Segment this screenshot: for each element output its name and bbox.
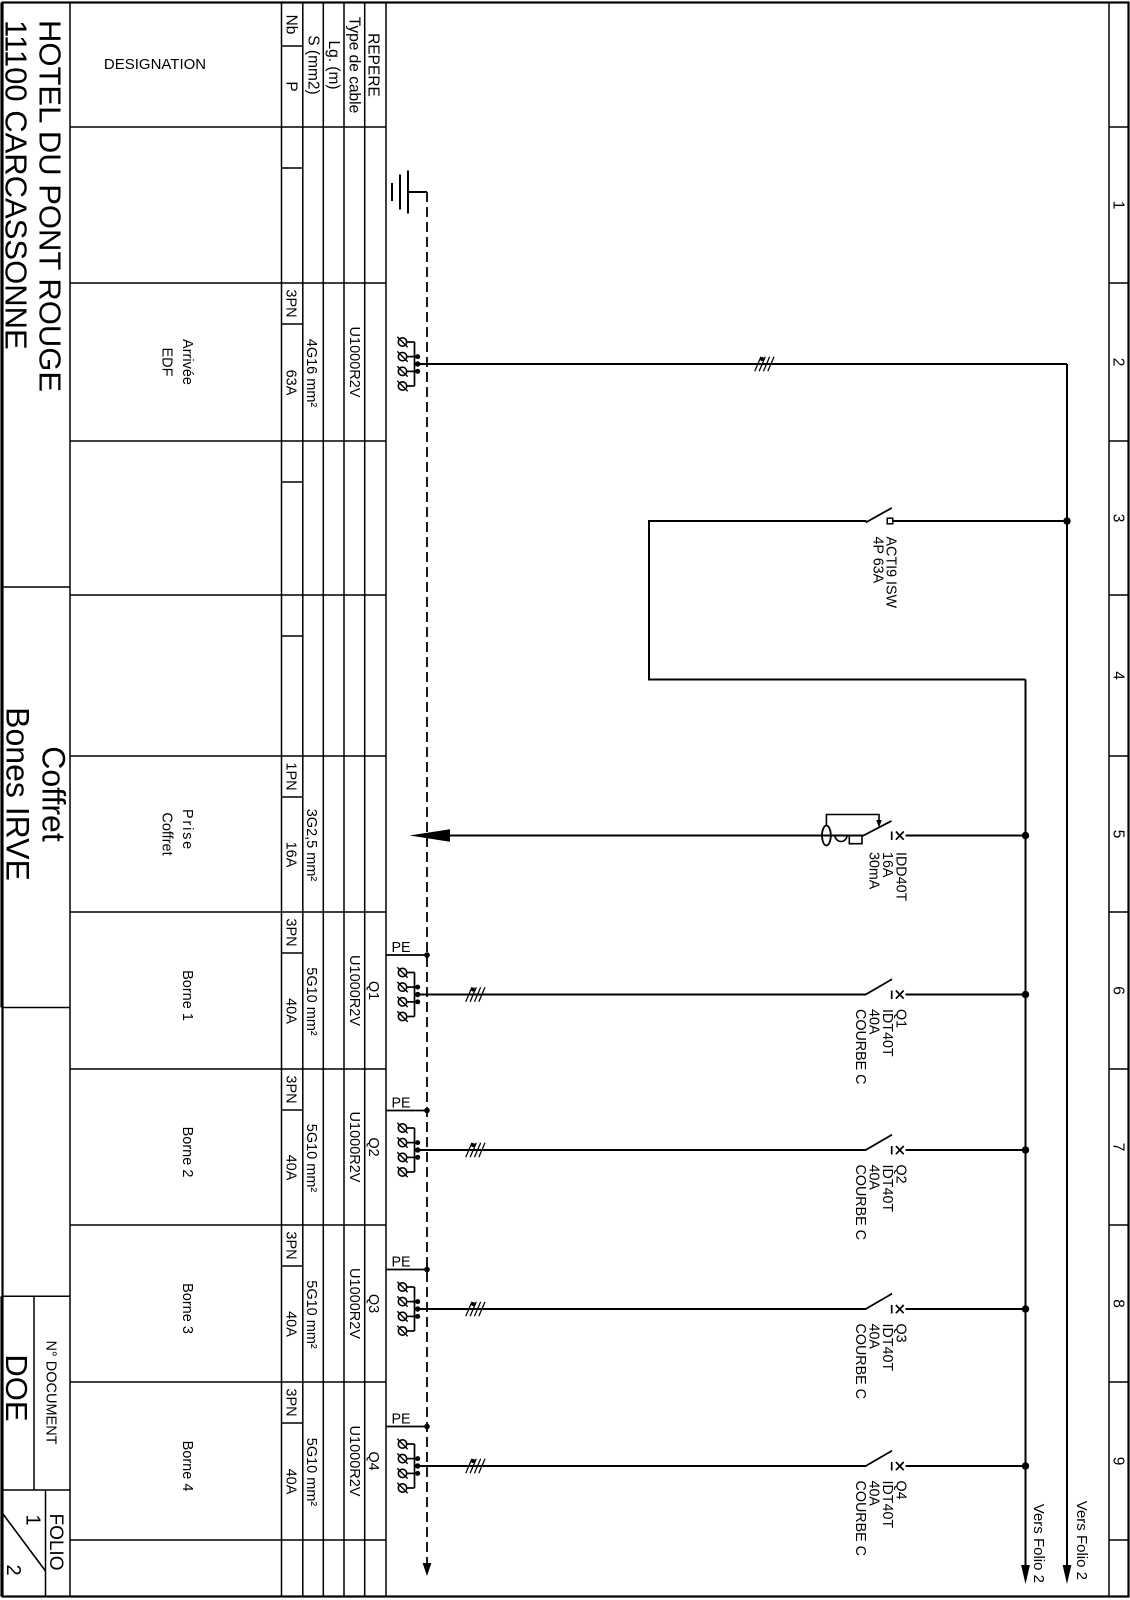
svg-text:6: 6 [1110, 986, 1127, 995]
svg-text:COURBE C: COURBE C [852, 1165, 868, 1240]
svg-text:1PN: 1PN [283, 762, 299, 790]
svg-text:3PN: 3PN [283, 1388, 299, 1416]
svg-text:3PN: 3PN [283, 1231, 299, 1259]
svg-text:5: 5 [1110, 830, 1127, 839]
svg-text:Borne 1: Borne 1 [179, 970, 195, 1021]
svg-text:PE: PE [392, 940, 411, 956]
svg-text:5G10 mm²: 5G10 mm² [303, 1438, 319, 1507]
svg-text:9: 9 [1110, 1457, 1127, 1466]
svg-text:S (mm2): S (mm2) [305, 35, 322, 94]
svg-text:N° DOCUMENT: N° DOCUMENT [43, 1340, 59, 1444]
svg-text:Type de cable: Type de cable [346, 17, 363, 114]
svg-text:11100 CARCASSONNE: 11100 CARCASSONNE [0, 20, 34, 350]
svg-text:63A: 63A [283, 370, 299, 396]
svg-text:COURBE C: COURBE C [852, 1009, 868, 1084]
svg-text:5G10 mm²: 5G10 mm² [303, 1280, 319, 1349]
svg-text:U1000R2V: U1000R2V [346, 327, 362, 398]
svg-text:Borne 3: Borne 3 [179, 1283, 195, 1334]
svg-text:2: 2 [2, 1564, 24, 1575]
svg-text:REPERE: REPERE [365, 33, 382, 97]
svg-text:2: 2 [1110, 358, 1127, 367]
svg-text:40A: 40A [283, 1311, 299, 1337]
svg-text:DOE: DOE [0, 1354, 34, 1421]
svg-text:EDF: EDF [159, 348, 175, 377]
svg-text:3PN: 3PN [283, 918, 299, 946]
svg-text:4: 4 [1110, 671, 1127, 680]
svg-text:4G16 mm²: 4G16 mm² [303, 339, 319, 408]
svg-text:16A: 16A [283, 842, 299, 868]
svg-text:Vers Folio 2: Vers Folio 2 [1073, 1501, 1090, 1580]
svg-text:COURBE C: COURBE C [852, 1481, 868, 1556]
svg-text:Nb: Nb [283, 15, 300, 35]
svg-text:Arrivée: Arrivée [179, 339, 195, 385]
svg-text:Q4: Q4 [365, 1451, 381, 1470]
svg-text:Prise: Prise [179, 809, 195, 851]
svg-text:U1000R2V: U1000R2V [346, 955, 362, 1026]
svg-text:5G10 mm²: 5G10 mm² [303, 1124, 319, 1193]
svg-text:Lg. (m): Lg. (m) [325, 40, 342, 89]
svg-text:Borne 2: Borne 2 [179, 1127, 195, 1178]
svg-text:P: P [283, 81, 300, 91]
svg-text:Coffret: Coffret [36, 746, 72, 842]
svg-text:FOLIO: FOLIO [45, 1513, 66, 1570]
svg-text:30mA: 30mA [866, 852, 882, 890]
svg-text:COURBE C: COURBE C [852, 1324, 868, 1399]
svg-text:Borne 4: Borne 4 [179, 1441, 195, 1492]
svg-text:U1000R2V: U1000R2V [346, 1426, 362, 1497]
svg-text:3G2,5 mm²: 3G2,5 mm² [303, 809, 319, 882]
svg-text:40A: 40A [283, 998, 299, 1024]
svg-text:3: 3 [1110, 514, 1127, 523]
svg-text:PE: PE [392, 1255, 411, 1271]
svg-text:40A: 40A [283, 1469, 299, 1495]
svg-text:DESIGNATION: DESIGNATION [104, 56, 206, 73]
svg-text:8: 8 [1110, 1299, 1127, 1308]
svg-text:40A: 40A [283, 1155, 299, 1181]
svg-text:4P 63A: 4P 63A [870, 537, 886, 584]
svg-text:Q3: Q3 [365, 1294, 381, 1313]
svg-text:1: 1 [22, 1514, 44, 1525]
svg-text:1: 1 [1110, 201, 1127, 210]
svg-text:PE: PE [392, 1412, 411, 1428]
svg-text:PE: PE [392, 1096, 411, 1112]
svg-text:7: 7 [1110, 1143, 1127, 1152]
svg-text:Vers Folio 2: Vers Folio 2 [1030, 1504, 1047, 1583]
svg-text:Q1: Q1 [365, 981, 381, 1000]
svg-text:5G10 mm²: 5G10 mm² [303, 967, 319, 1036]
svg-text:Q2: Q2 [365, 1137, 381, 1156]
svg-text:U1000R2V: U1000R2V [346, 1268, 362, 1339]
svg-text:3PN: 3PN [283, 1075, 299, 1103]
svg-text:Bones IRVE: Bones IRVE [0, 707, 36, 881]
svg-text:U1000R2V: U1000R2V [346, 1112, 362, 1183]
svg-text:3PN: 3PN [283, 289, 299, 317]
svg-text:HOTEL DU PONT ROUGE: HOTEL DU PONT ROUGE [33, 20, 68, 392]
svg-text:Coffret: Coffret [159, 812, 175, 855]
